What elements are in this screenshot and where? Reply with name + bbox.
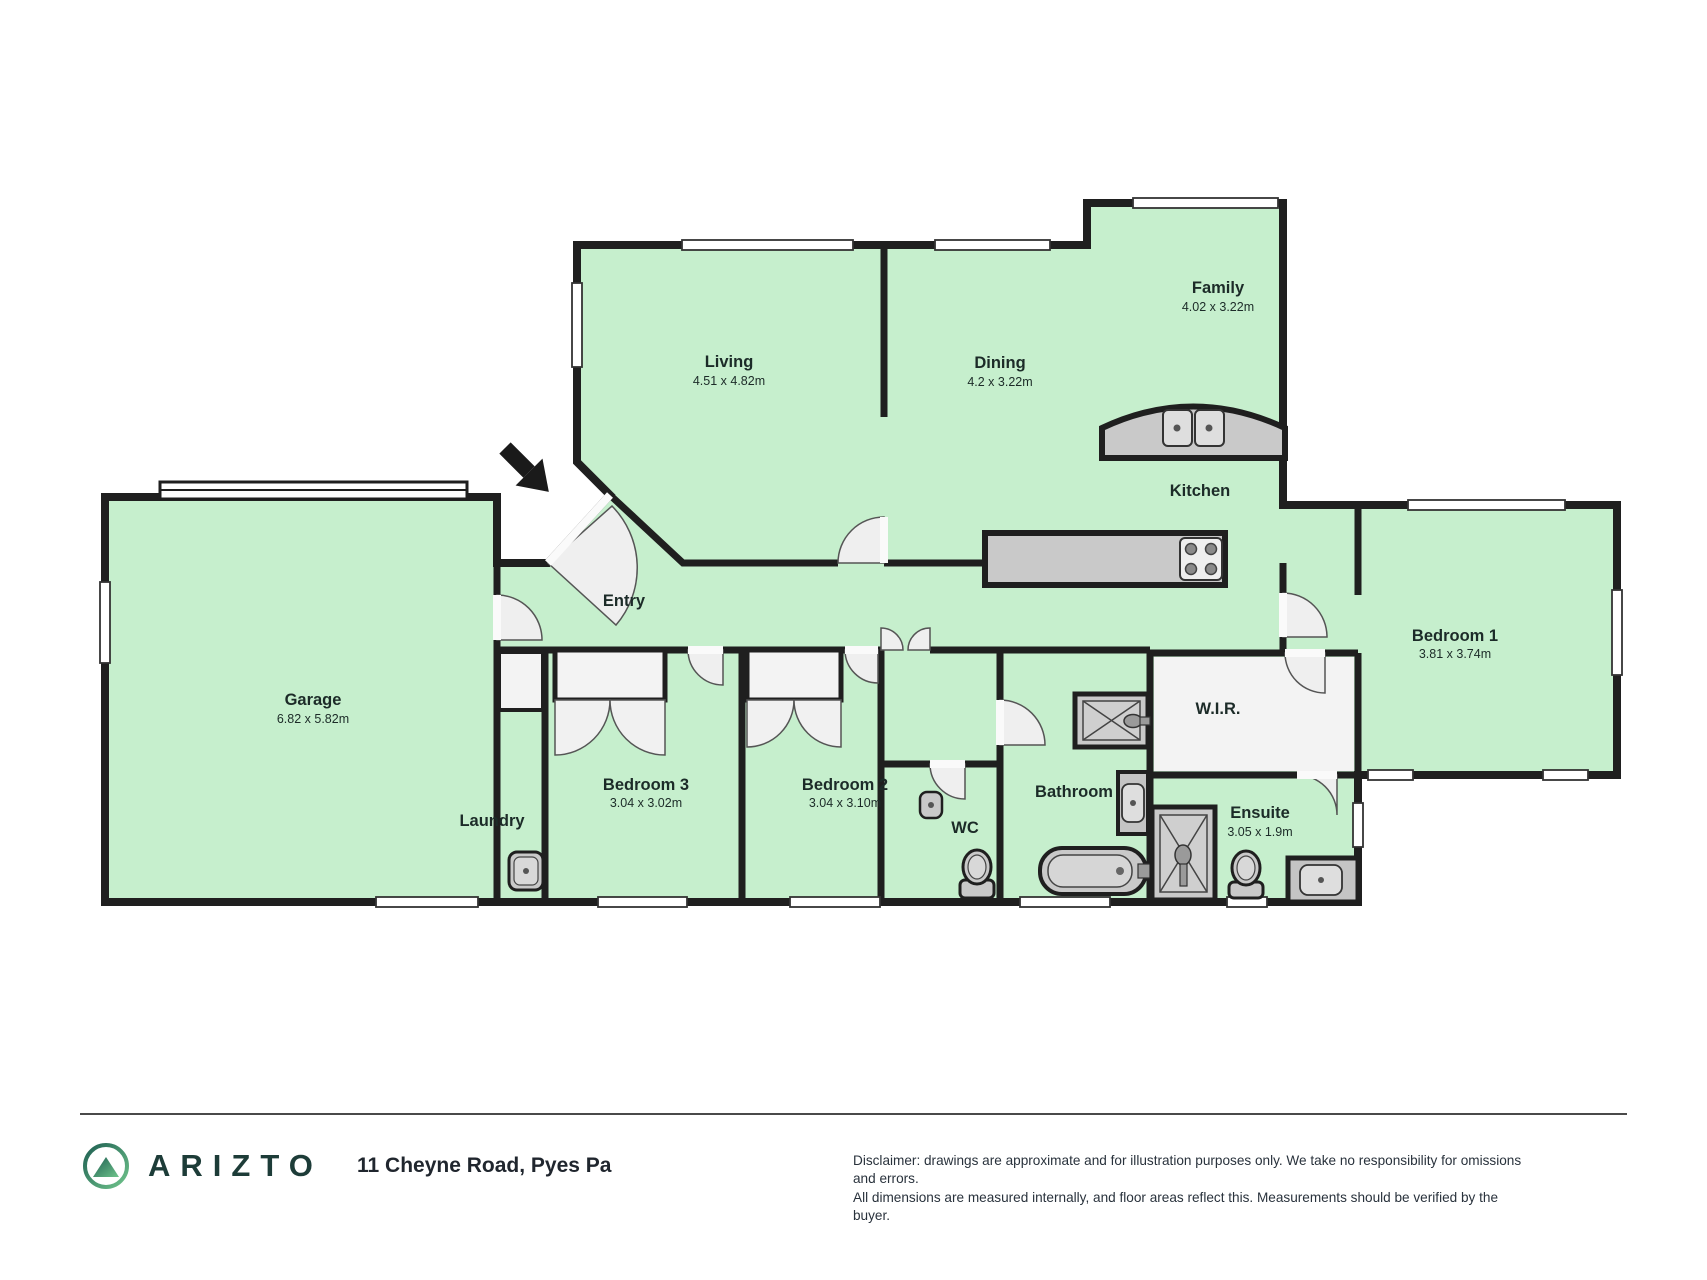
kitchen-counter xyxy=(985,533,1225,585)
floorplan-page: Living 4.51 x 4.82m Dining 4.2 x 3.22m F… xyxy=(0,0,1707,1280)
footer-divider xyxy=(80,1113,1627,1115)
brand-name: ARIZTO xyxy=(148,1148,323,1184)
bath-icon xyxy=(1040,848,1150,894)
ensuite-toilet-icon xyxy=(1229,851,1263,898)
disclaimer-line-2: All dimensions are measured internally, … xyxy=(853,1189,1533,1226)
property-address: 11 Cheyne Road, Pyes Pa xyxy=(357,1154,611,1178)
kitchen-island xyxy=(1102,407,1285,459)
entry-arrow-icon xyxy=(492,435,563,506)
bedroom1-label: Bedroom 1 xyxy=(1412,627,1498,645)
laundry-cupboard xyxy=(499,652,543,710)
garage-sectional-door xyxy=(160,482,467,499)
garage-label: Garage xyxy=(285,691,342,709)
living-label: Living xyxy=(705,353,754,371)
wc-toilet-icon xyxy=(960,850,994,898)
dining-dims: 4.2 x 3.22m xyxy=(967,375,1032,389)
ensuite-shower-icon xyxy=(1152,807,1215,900)
ensuite-label: Ensuite xyxy=(1230,804,1290,822)
garage-dims: 6.82 x 5.82m xyxy=(277,712,349,726)
ensuite-vanity-icon xyxy=(1288,858,1358,902)
stove-icon xyxy=(1180,538,1222,580)
wc-label: WC xyxy=(951,819,979,837)
wir-label: W.I.R. xyxy=(1196,700,1241,718)
living-dims: 4.51 x 4.82m xyxy=(693,374,765,388)
disclaimer-text: Disclaimer: drawings are approximate and… xyxy=(853,1152,1533,1225)
floorplan-svg: Living 4.51 x 4.82m Dining 4.2 x 3.22m F… xyxy=(0,0,1707,1100)
family-dims: 4.02 x 3.22m xyxy=(1182,300,1254,314)
wc-cistern-icon xyxy=(920,792,942,818)
bathroom-vanity-icon xyxy=(1118,772,1148,834)
family-label: Family xyxy=(1192,279,1245,297)
bathroom-shower-icon xyxy=(1075,694,1150,747)
ensuite-dims: 3.05 x 1.9m xyxy=(1227,825,1292,839)
bedroom2-label: Bedroom 2 xyxy=(802,776,888,794)
bedroom3-label: Bedroom 3 xyxy=(603,776,689,794)
footer: ARIZTO 11 Cheyne Road, Pyes Pa Disclaime… xyxy=(0,1130,1707,1240)
bedroom3-dims: 3.04 x 3.02m xyxy=(610,796,682,810)
dining-label: Dining xyxy=(974,354,1025,372)
entry-label: Entry xyxy=(603,592,646,610)
laundry-tub-icon xyxy=(509,852,543,890)
kitchen-label: Kitchen xyxy=(1170,482,1231,500)
bathroom-label: Bathroom xyxy=(1035,783,1113,801)
bedroom1-dims: 3.81 x 3.74m xyxy=(1419,647,1491,661)
bedroom2-dims: 3.04 x 3.10m xyxy=(809,796,881,810)
disclaimer-line-1: Disclaimer: drawings are approximate and… xyxy=(853,1152,1533,1189)
arizto-logo-icon xyxy=(83,1143,129,1189)
laundry-label: Laundry xyxy=(459,812,525,830)
